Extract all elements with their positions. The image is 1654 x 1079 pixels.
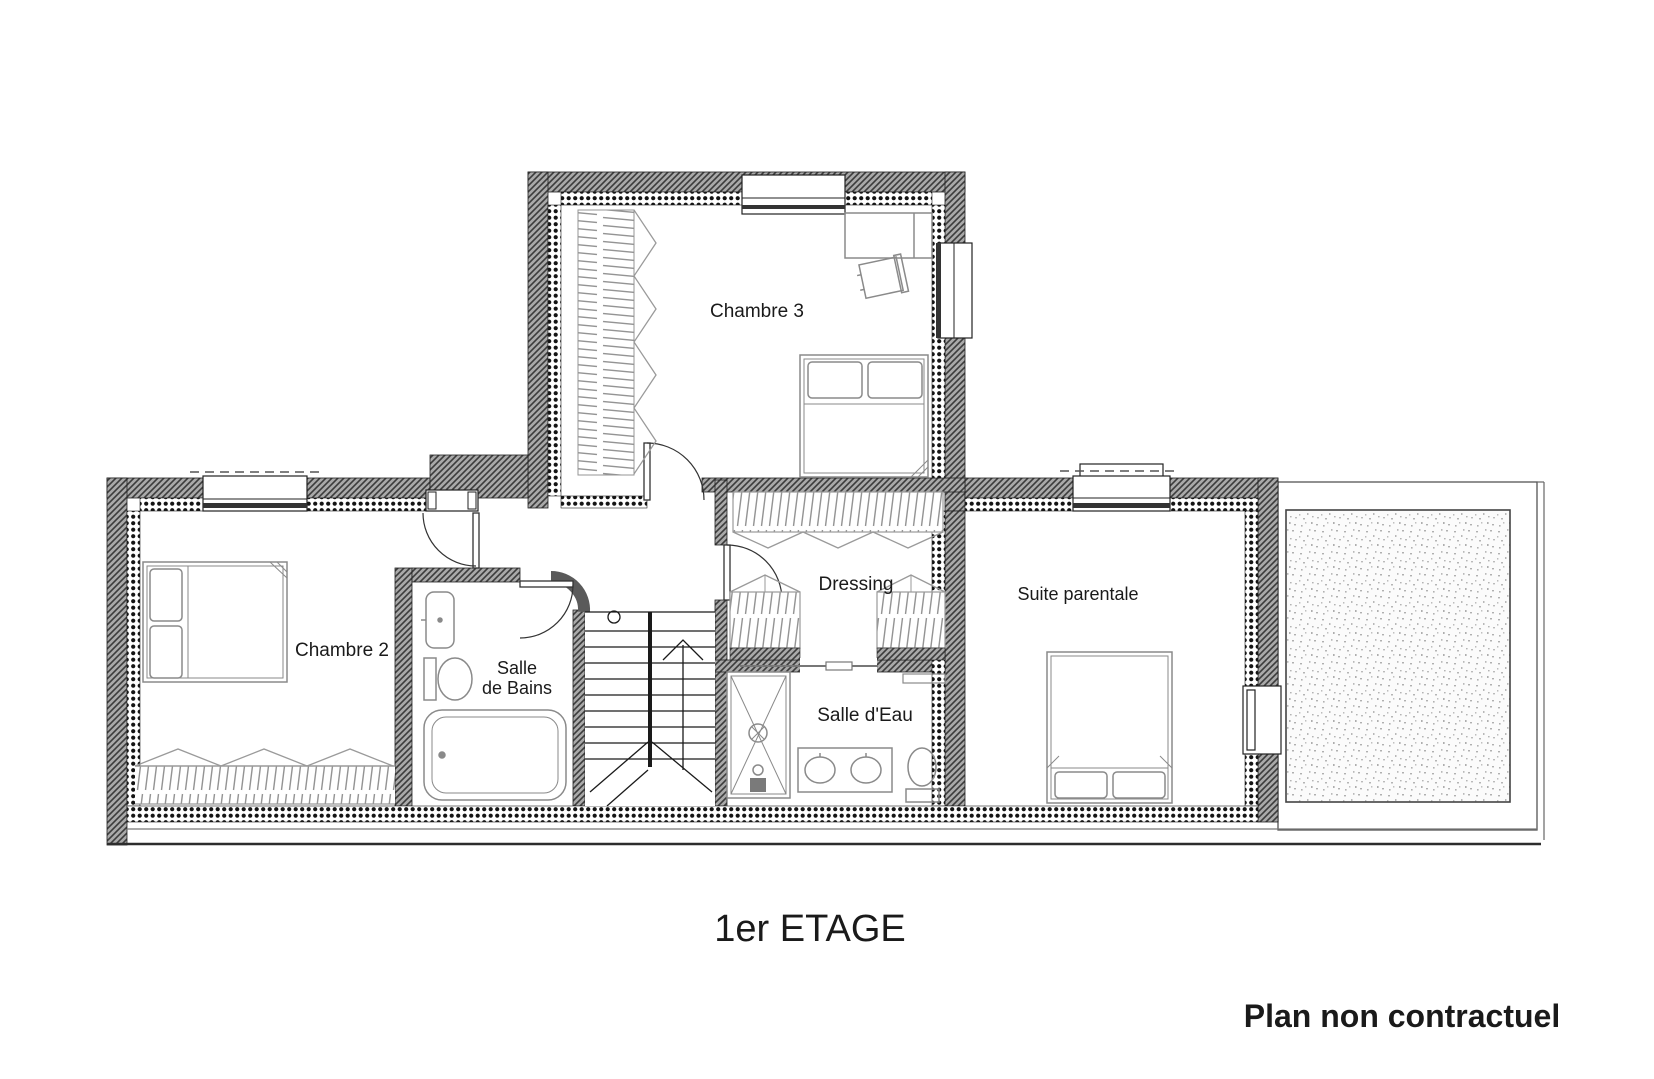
bed-chambre2 (143, 562, 287, 682)
label-salle-deau: Salle d'Eau (817, 705, 913, 726)
floorplan-page: Chambre 3 Chambre 2 (0, 0, 1654, 1079)
plan-title: 1er ETAGE (714, 908, 905, 950)
shower (727, 672, 790, 798)
label-chambre2: Chambre 2 (295, 640, 389, 661)
bed-suite (1047, 652, 1172, 803)
sink-salle-de-bains (421, 592, 454, 648)
window-suite (1060, 464, 1180, 511)
terrace-floor (1286, 510, 1510, 802)
closet-chambre3 (578, 210, 656, 475)
toilet-salle-de-bains (424, 658, 472, 700)
label-chambre3: Chambre 3 (710, 301, 804, 322)
stair-stringer (648, 612, 652, 767)
door-chambre2 (423, 513, 479, 568)
wardrobe-unit-left (730, 575, 800, 660)
lower-floor-outline (107, 829, 1541, 844)
room-dressing: Dressing (730, 492, 945, 683)
room-chambre2: Chambre 2 (135, 562, 395, 804)
wardrobe-top-row (733, 492, 943, 548)
label-suite-parentale: Suite parentale (1017, 584, 1138, 604)
label-dressing: Dressing (819, 574, 894, 595)
bed-chambre3 (800, 355, 928, 477)
room-suite-parentale: Suite parentale (1017, 584, 1172, 803)
room-chambre3: Chambre 3 (578, 210, 932, 477)
desk-chair (855, 254, 909, 301)
floorplan-drawing: Chambre 3 Chambre 2 (0, 0, 1654, 1079)
window-chambre3-right (936, 243, 972, 338)
door-salle-de-bains (520, 581, 573, 638)
staircase (585, 611, 715, 806)
room-salle-de-bains: Salle de Bains (421, 592, 566, 800)
window-chambre3-top (742, 175, 845, 214)
label-salle-de-bains-2: de Bains (482, 678, 552, 698)
desk-chambre3 (845, 213, 932, 258)
room-salle-deau: Salle d'Eau (727, 672, 939, 802)
double-sink-vanity (798, 748, 892, 792)
window-corridor (426, 490, 478, 511)
closet-chambre2 (135, 749, 395, 804)
window-chambre2 (190, 472, 320, 511)
terrace-door (1243, 686, 1281, 754)
plan-disclaimer: Plan non contractuel (1244, 998, 1560, 1034)
terrace (1278, 482, 1544, 840)
label-salle-de-bains-1: Salle (497, 658, 537, 678)
bathtub (424, 710, 566, 800)
door-chambre3 (644, 443, 704, 500)
